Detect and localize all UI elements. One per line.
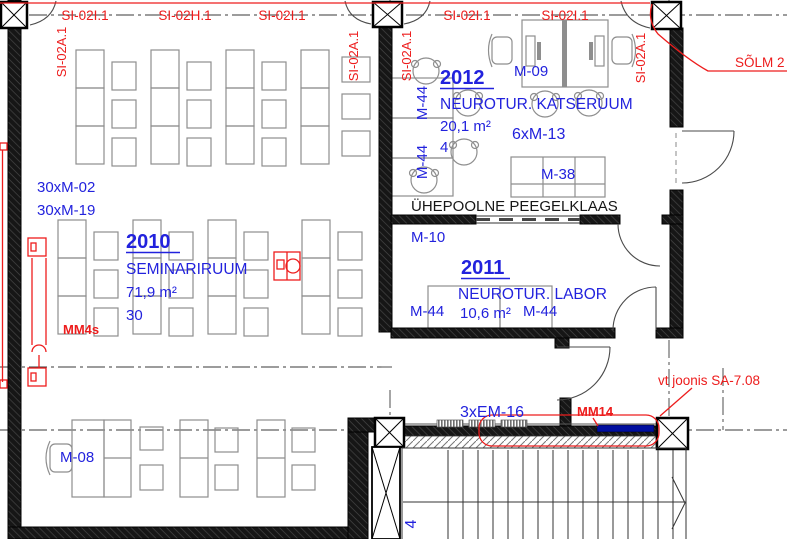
seminar-room-desks-upper — [76, 50, 370, 166]
room-2012-number: 2012 — [440, 67, 485, 89]
room-2011-door — [613, 287, 656, 330]
node-callout-label: SÕLM 2 — [735, 55, 785, 70]
mirror-glass-wall — [476, 216, 580, 223]
seminar-room-desks-middle — [58, 220, 362, 336]
floor-plan-page: SI-02I.1 SI-02H.1 SI-02I.1 SI-02I.1 SI-0… — [0, 0, 787, 539]
label-3xem16: 3xEM-16 — [460, 404, 524, 421]
floor-plan-canvas: SI-02I.1 SI-02H.1 SI-02I.1 SI-02I.1 SI-0… — [0, 0, 787, 539]
column — [375, 418, 404, 447]
door-swing — [345, 1, 371, 24]
room-2010-number: 2010 — [126, 231, 171, 253]
room-2011-number: 2011 — [461, 257, 504, 279]
column — [657, 418, 688, 449]
door-swing — [30, 1, 56, 25]
column-tag: SI-02A.1 — [399, 31, 414, 82]
detail-reference-label: vt joonis SA-7.08 — [658, 373, 760, 388]
mm14-sill-bar — [597, 425, 654, 432]
label-stair-4: 4 — [403, 519, 420, 528]
stair-direction-arrow — [672, 477, 685, 529]
corridor-door — [676, 131, 734, 183]
label-m10: M-10 — [411, 229, 445, 246]
room-2012-door — [618, 224, 660, 266]
room-2012-area: 20,1 m² — [440, 118, 491, 135]
sill-label: MM14 — [577, 404, 614, 419]
room-2011-name: NEUROTUR. LABOR — [458, 286, 607, 303]
label-m38: M-38 — [541, 166, 575, 183]
column-tag: SI-02A.1 — [346, 31, 361, 82]
room-2012-capacity: 4 — [440, 139, 448, 156]
section-marker: SI-02I.1 — [61, 8, 108, 23]
label-6xm13: 6xM-13 — [512, 126, 565, 143]
label-m44-right: M-44 — [523, 303, 557, 320]
room-2010-area: 71,9 m² — [126, 284, 177, 301]
label-m08: M-08 — [60, 449, 94, 466]
section-marker: SI-02I.1 — [541, 8, 588, 23]
mirror-glass-note: ÜHEPOOLNE PEEGELKLAAS — [411, 197, 618, 215]
label-m44-vertical: M-44 — [414, 145, 431, 179]
room-2011-area: 10,6 m² — [460, 305, 511, 322]
section-marker: SI-02I.1 — [258, 8, 305, 23]
column — [1, 2, 27, 28]
column-tag: SI-02A.1 — [54, 27, 69, 78]
grilles-em16 — [437, 420, 527, 427]
room-2010-name: SEMINARIRUUM — [126, 261, 247, 278]
floor-socket-symbol — [274, 252, 300, 280]
door-swing — [621, 1, 650, 28]
column — [373, 2, 402, 27]
label-30xm19: 30xM-19 — [37, 202, 95, 219]
label-m44-vertical: M-44 — [414, 86, 431, 120]
label-m44-left: M-44 — [410, 303, 444, 320]
room-2012-name: NEUROTUR. KATSERUUM — [440, 96, 633, 113]
section-marker: SI-02H.1 — [158, 8, 211, 23]
shaft-x-brace — [372, 447, 400, 539]
workstation-m09 — [489, 20, 636, 87]
label-m09: M-09 — [514, 63, 548, 80]
duct-label: MM4s — [63, 322, 99, 337]
column-tag: SI-02A.1 — [633, 33, 648, 84]
door-swing — [404, 1, 430, 24]
section-marker: SI-02I.1 — [443, 8, 490, 23]
label-30xm02: 30xM-02 — [37, 179, 95, 196]
column — [652, 2, 681, 29]
room-2010-capacity: 30 — [126, 307, 143, 324]
stair-door — [557, 347, 610, 400]
